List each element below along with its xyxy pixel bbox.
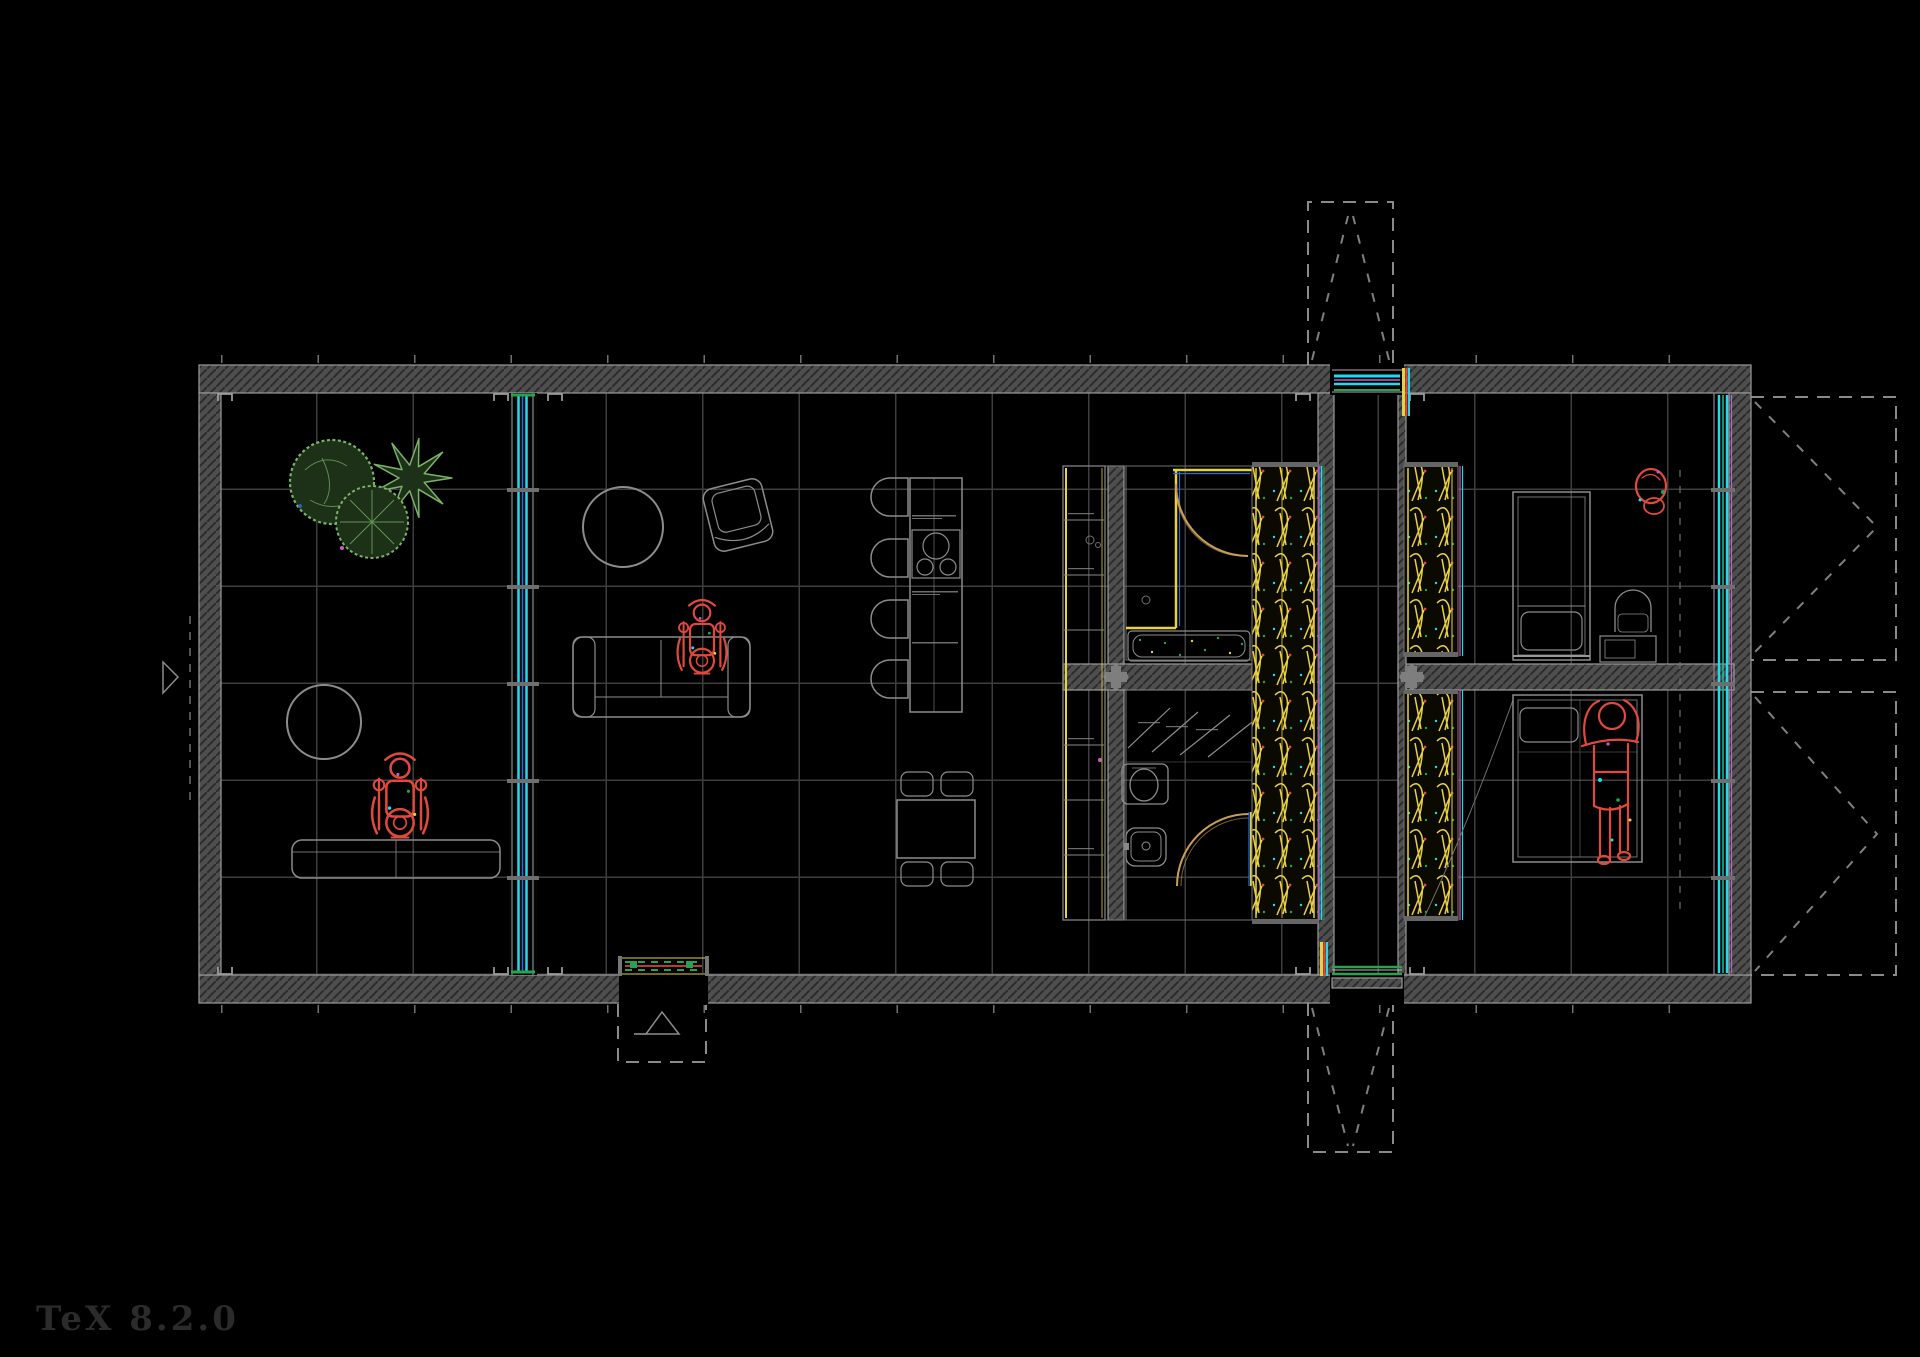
window-mid (507, 393, 539, 975)
door-jamb-stripes (1402, 368, 1410, 416)
hanger-rail-lower (1404, 690, 1463, 921)
cross-tree (336, 486, 408, 558)
ramp-top (1308, 202, 1393, 365)
bath-wall (1108, 466, 1124, 920)
watermark-text: TeX 8.2.0 (36, 1299, 239, 1339)
terrace-lower-right (1751, 692, 1896, 975)
section-marker-left (163, 616, 190, 800)
drawing-canvas: TeX 8.2.0 (0, 0, 1920, 1357)
bath-mid-wall (1063, 664, 1252, 690)
terrace-upper-right (1751, 397, 1896, 660)
window-right (1711, 393, 1735, 975)
bedroom-divider-wall (1398, 664, 1734, 690)
corridor-wall-left (1318, 393, 1334, 975)
door-jamb-stripes (1320, 942, 1328, 976)
wardrobe-left (1252, 462, 1324, 924)
floor-plan: TeX 8.2.0 (0, 0, 1920, 1357)
ramp-bottom (1308, 1003, 1393, 1152)
hanger-rail-upper (1404, 462, 1463, 657)
